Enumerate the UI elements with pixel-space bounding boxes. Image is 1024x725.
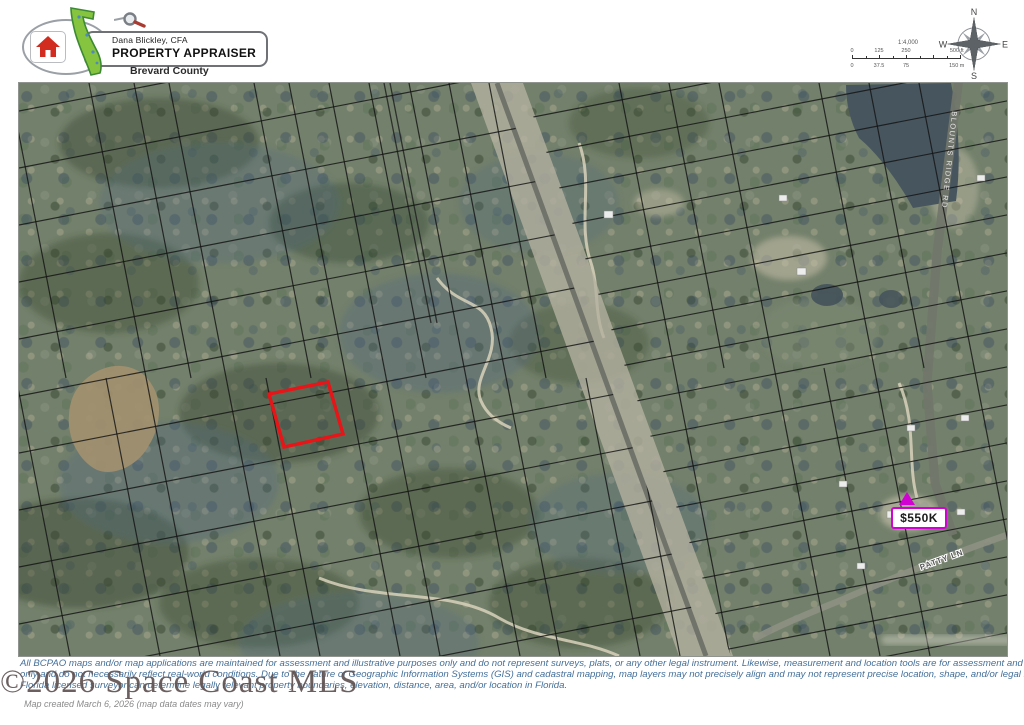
county-label: Brevard County xyxy=(130,65,209,77)
house-icon xyxy=(30,31,66,63)
compass-e: E xyxy=(1002,40,1008,50)
aerial-parcel-map[interactable]: BLOUNTS RIDGE RD PATTY LN $550K xyxy=(18,82,1008,657)
compass-rose-icon: N E S W xyxy=(938,8,1010,80)
scale-m-75: 75 xyxy=(903,63,909,69)
imagery-watermark xyxy=(881,635,1007,645)
florida-state-icon xyxy=(66,5,108,77)
compass-n: N xyxy=(971,8,978,17)
mls-watermark: ©2026 Space Coast MLS xyxy=(0,664,359,701)
scale-ft-125: 125 xyxy=(874,48,883,54)
logo-text-box: Dana Blickley, CFA PROPERTY APPRAISER xyxy=(84,31,268,67)
compass-s: S xyxy=(971,71,977,80)
scale-m-0: 0 xyxy=(850,63,853,69)
appraiser-title: PROPERTY APPRAISER xyxy=(112,46,262,60)
terrain-patches xyxy=(19,88,979,656)
scale-m-37: 37.5 xyxy=(874,63,885,69)
compass-w: W xyxy=(939,40,948,50)
pond xyxy=(879,290,903,308)
pond xyxy=(811,284,843,306)
magnifier-icon xyxy=(114,11,148,31)
price-marker[interactable]: $550K xyxy=(891,507,947,529)
patty-ln-road xyxy=(754,535,1007,639)
map-created-note: Map created March 6, 2026 (map data date… xyxy=(24,699,244,709)
appraiser-name: Dana Blickley, CFA xyxy=(112,35,262,45)
bcpao-map-export: Dana Blickley, CFA PROPERTY APPRAISER Br… xyxy=(0,0,1024,725)
scale-ft-0: 0 xyxy=(850,48,853,54)
map-overlay: BLOUNTS RIDGE RD PATTY LN xyxy=(19,83,1007,656)
price-marker-arrow-icon xyxy=(899,492,915,505)
street-label-patty-ln: PATTY LN xyxy=(919,548,965,572)
bcpao-logo: Dana Blickley, CFA PROPERTY APPRAISER Br… xyxy=(26,5,246,77)
scale-ft-250: 250 xyxy=(901,48,910,54)
